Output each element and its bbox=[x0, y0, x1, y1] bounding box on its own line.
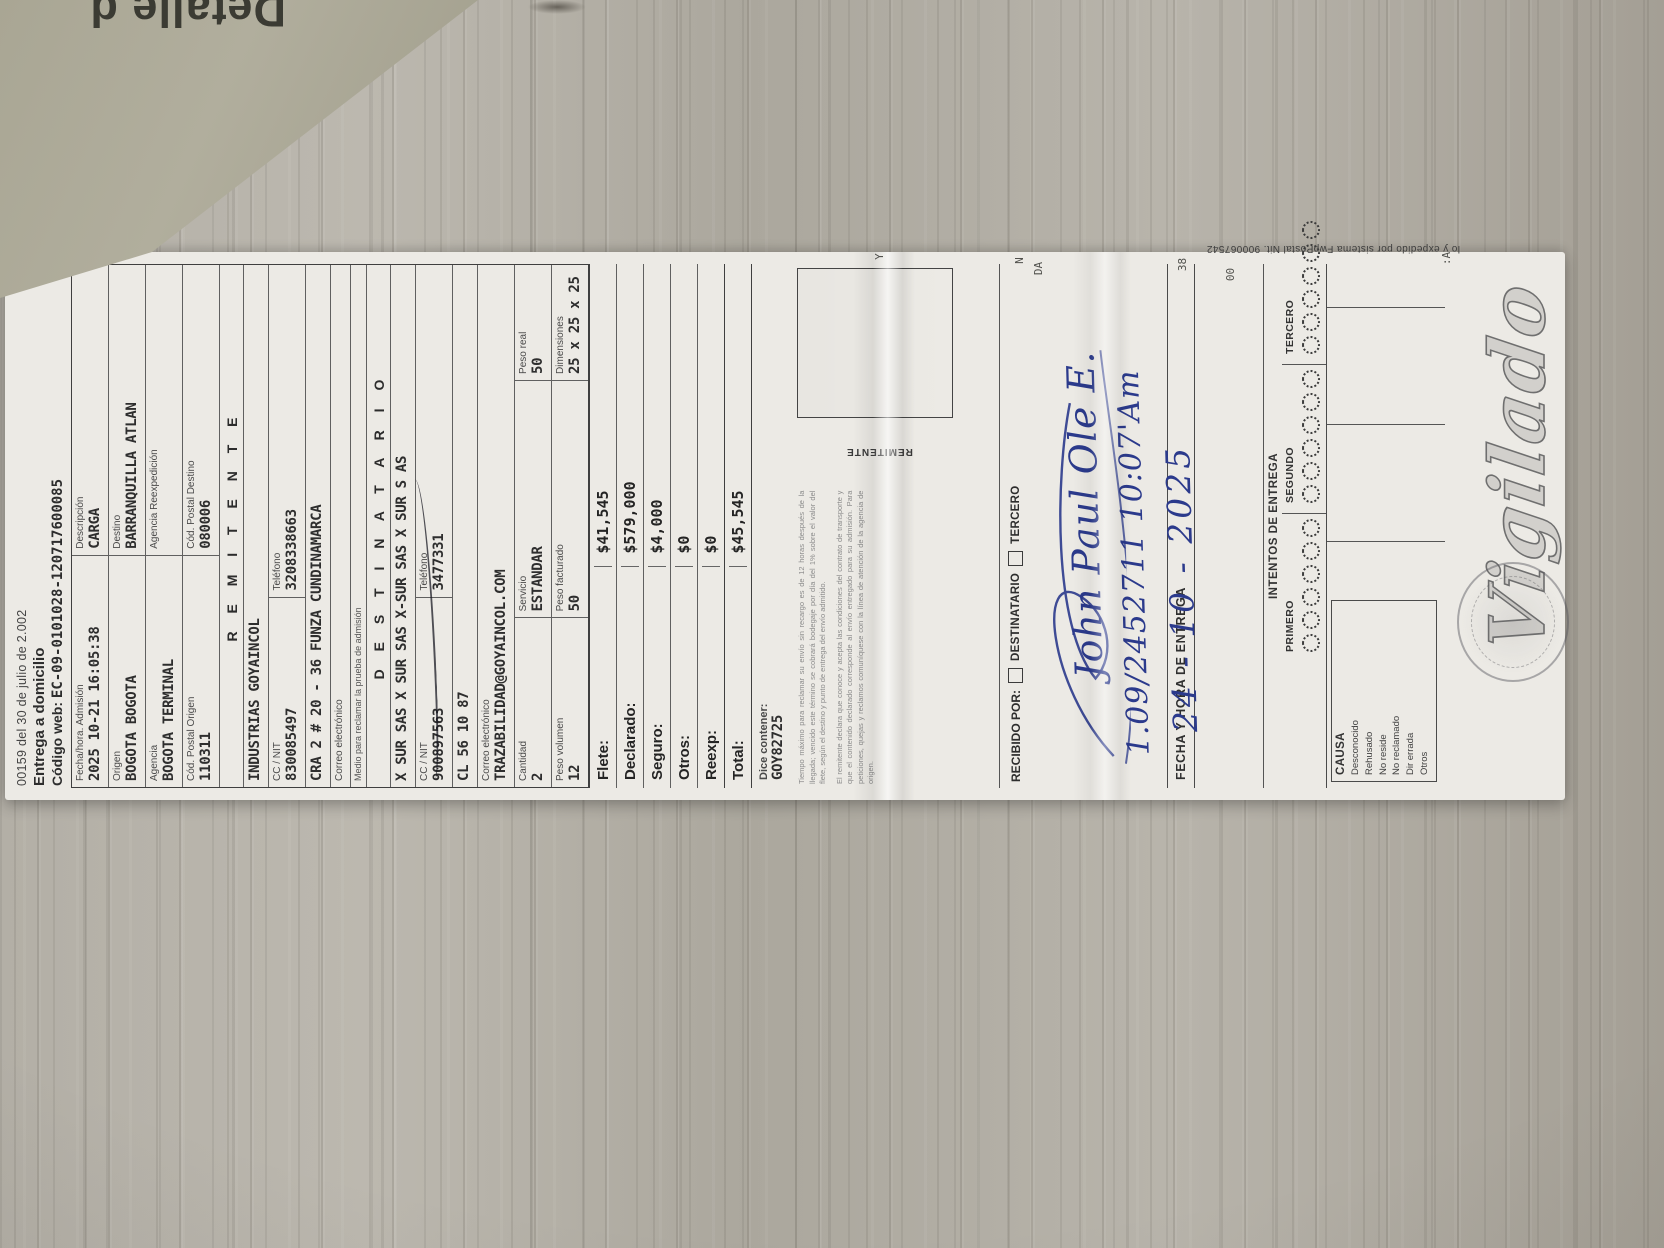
tercero-checkbox bbox=[1008, 551, 1023, 566]
seguro-label: Seguro: bbox=[649, 567, 666, 780]
charge-row: Flete: $41,545 bbox=[590, 264, 616, 788]
causa-section: CAUSA Desconocido Rehusado No reside No … bbox=[1326, 264, 1445, 788]
handwritten-annotations: John Paul Ole E. 1.09/2452711 10:07'Am 2… bbox=[1056, 254, 1310, 776]
sender-signature-box bbox=[797, 268, 953, 418]
received-by-row: RECIBIDO POR: DESTINATARIO TERCERO bbox=[1000, 262, 1029, 790]
peso-real-label: Peso real bbox=[518, 271, 530, 374]
charge-row: Declarado: $579,000 bbox=[616, 264, 643, 788]
flete-label: Flete: bbox=[595, 567, 612, 780]
reexp-label: Reexp: bbox=[703, 567, 720, 780]
cause-item: Rehusado bbox=[1363, 607, 1377, 775]
qty-label: Cantidad bbox=[518, 624, 530, 781]
reexp-value: $0 bbox=[702, 272, 720, 567]
shipment-row: Cantidad 2 Servicio ESTANDAR Peso real 5… bbox=[514, 265, 551, 787]
tercero-option: TERCERO bbox=[1010, 486, 1022, 544]
recipient-email-value: TRAZABILIDAD@GOYAINCOL.COM bbox=[493, 271, 510, 781]
admission-label: Fecha/hora. Admisión bbox=[75, 562, 87, 781]
charge-row: Seguro: $4,000 bbox=[643, 264, 670, 788]
edge-fragment: Y bbox=[873, 253, 886, 260]
sender-section-header: R E M I T E N T E bbox=[219, 265, 243, 787]
charges-table: Flete: $41,545 Declarado: $579,000 Segur… bbox=[589, 264, 752, 788]
postal-stamp bbox=[1457, 562, 1569, 682]
declarado-value: $579,000 bbox=[621, 272, 639, 567]
shipment-row: Peso volumen 12 Peso facturado 50 Dimens… bbox=[551, 265, 588, 787]
postal-dest-label: Cód. Postal Destino bbox=[186, 271, 198, 549]
table-row: Origen BOGOTA BOGOTA Destino BARRANQUILL… bbox=[108, 265, 145, 787]
sender-phone-value: 3208338663 bbox=[284, 271, 301, 591]
recipient-address: CL 56 10 87 bbox=[452, 265, 477, 787]
cause-item: Otros bbox=[1418, 607, 1432, 775]
qty-value: 2 bbox=[530, 624, 547, 781]
contents-row: Dice contener: GOY82725 bbox=[752, 262, 791, 790]
column-divider bbox=[1327, 307, 1445, 308]
postal-dest-value: 080006 bbox=[198, 271, 215, 549]
origin-value: BOGOTA BOGOTA bbox=[124, 562, 141, 781]
agency-value: BOGOTA TERMINAL bbox=[161, 562, 178, 781]
law-line: 00159 del 30 de julio de 2.002 bbox=[15, 262, 29, 786]
edge-fragment: :A bbox=[1440, 252, 1453, 265]
kraft-envelope-label: Detalle d bbox=[6, 0, 286, 36]
table-row: Cód. Postal Origen 110311 Cód. Postal De… bbox=[182, 265, 219, 787]
peso-fact-value: 50 bbox=[567, 387, 584, 611]
system-edge-note: lo y expedido por sistema FwpPostal Nit.… bbox=[1130, 243, 1460, 254]
sender-nit-value: 830085497 bbox=[284, 604, 301, 781]
wood-knot bbox=[528, 0, 586, 14]
admission-value: 2025 10-21 16:05:38 bbox=[87, 562, 104, 781]
otros-label: Otros: bbox=[676, 567, 693, 780]
service-label: Servicio bbox=[518, 387, 530, 611]
causa-label: CAUSA bbox=[1335, 607, 1347, 775]
delivery-date-handwritten: 24 - 10 - 2025 bbox=[1153, 257, 1205, 733]
cause-item: No reclamado bbox=[1390, 607, 1404, 775]
edge-fragment: 00 bbox=[1224, 268, 1237, 281]
sender-name: INDUSTRIAS GOYAINCOL bbox=[243, 265, 268, 787]
recipient-email-label: Correo electrónico bbox=[481, 271, 493, 781]
edge-fragment: DA bbox=[1032, 262, 1045, 275]
peso-vol-label: Peso volumen bbox=[555, 624, 567, 781]
divider-row bbox=[963, 264, 1000, 788]
otros-value: $0 bbox=[675, 272, 693, 567]
attempt-circles bbox=[1302, 365, 1320, 503]
receipt-title: Entrega a domicilio bbox=[31, 262, 48, 786]
seguro-value: $4,000 bbox=[648, 272, 666, 567]
web-code-value: EC-09-0101028-120717600085 bbox=[50, 479, 66, 698]
attempt-circles bbox=[1302, 216, 1320, 354]
charge-row: Reexp: $0 bbox=[697, 264, 724, 788]
agency-reexp-label: Agencia Reexpedición bbox=[149, 271, 161, 549]
total-value: $45,545 bbox=[729, 272, 747, 567]
column-divider bbox=[1327, 424, 1445, 425]
description-value: CARGA bbox=[87, 271, 104, 549]
shipping-receipt: 00159 del 30 de julio de 2.002 Entrega a… bbox=[5, 252, 1565, 800]
edge-fragment: 38 bbox=[1176, 258, 1189, 271]
column-divider bbox=[1327, 541, 1445, 542]
declarado-label: Declarado: bbox=[622, 567, 639, 780]
waybill-table: Fecha/hora. Admisión 2025 10-21 16:05:38… bbox=[71, 264, 589, 788]
receipt-content: 00159 del 30 de julio de 2.002 Entrega a… bbox=[5, 252, 1565, 800]
postal-origin-label: Cód. Postal Origen bbox=[186, 562, 198, 781]
agency-label: Agencia bbox=[149, 562, 161, 781]
total-row: Total: $45,545 bbox=[724, 264, 751, 788]
signature-flourish bbox=[1030, 344, 1132, 776]
origin-label: Origen bbox=[112, 562, 124, 781]
fine-print: Tiempo máximo para reclamar su envío sin… bbox=[795, 485, 963, 788]
destination-label: Destino bbox=[112, 271, 124, 549]
recipient-phone-value: 3477331 bbox=[431, 271, 448, 591]
postal-origin-value: 110311 bbox=[198, 562, 215, 781]
flete-value: $41,545 bbox=[594, 272, 612, 567]
peso-real-value: 50 bbox=[530, 271, 547, 374]
table-row: CC / NIT 830085497 Teléfono 3208338663 bbox=[268, 265, 305, 787]
sender-email-label: Correo electrónico bbox=[334, 271, 346, 781]
photo-scene: Y N DA 38 00 :A 00159 del 30 de julio de… bbox=[0, 0, 1664, 1248]
received-by-label: RECIBIDO POR: bbox=[1009, 690, 1023, 782]
sender-phone-label: Teléfono bbox=[272, 271, 284, 591]
edge-fragment: N bbox=[1013, 257, 1026, 264]
contents-value: GOY82725 bbox=[770, 272, 787, 780]
recipient-name: X SUR SAS X SUR SAS X-SUR SAS X SUR S AS bbox=[394, 436, 411, 781]
table-row: Fecha/hora. Admisión 2025 10-21 16:05:38… bbox=[72, 265, 108, 787]
charge-row: Otros: $0 bbox=[670, 264, 697, 788]
cause-item: Dir errada bbox=[1404, 607, 1418, 775]
sender-box-label: REMITENTE bbox=[795, 418, 963, 485]
table-row: Agencia BOGOTA TERMINAL Agencia Reexpedi… bbox=[145, 265, 182, 787]
description-label: Descripción bbox=[75, 271, 87, 549]
peso-vol-value: 12 bbox=[567, 624, 584, 781]
cause-item: No reside bbox=[1377, 607, 1391, 775]
peso-fact-label: Peso facturado bbox=[555, 387, 567, 611]
sender-address: CRA 2 # 20 - 36 FUNZA CUNDINAMARCA bbox=[305, 265, 330, 787]
destinatario-option: DESTINATARIO bbox=[1010, 573, 1022, 661]
total-label: Total: bbox=[730, 567, 747, 780]
destinatario-checkbox bbox=[1008, 668, 1023, 683]
service-value: ESTANDAR bbox=[530, 387, 547, 611]
sender-nit-label: CC / NIT bbox=[272, 604, 284, 781]
cause-item: Desconocido bbox=[1349, 607, 1363, 775]
recipient-section-header: D E S T I N A T A R I O bbox=[366, 265, 390, 787]
web-code-label: Código web: bbox=[49, 702, 65, 786]
contents-label: Dice contener: bbox=[758, 272, 770, 780]
destination-value: BARRANQUILLA ATLAN bbox=[124, 271, 141, 549]
causa-box: CAUSA Desconocido Rehusado No reside No … bbox=[1331, 600, 1437, 782]
admission-proof-note: Medio para reclamar la prueba de admisió… bbox=[350, 265, 366, 787]
dimensions-value: 25 x 25 x 25 bbox=[567, 271, 584, 374]
recipient-name-row: X SUR SAS X SUR SAS X-SUR SAS X SUR S AS bbox=[390, 265, 415, 787]
fineprint-and-signature: Tiempo máximo para reclamar su envío sin… bbox=[795, 264, 963, 788]
dimensions-label: Dimensiones bbox=[555, 271, 567, 374]
